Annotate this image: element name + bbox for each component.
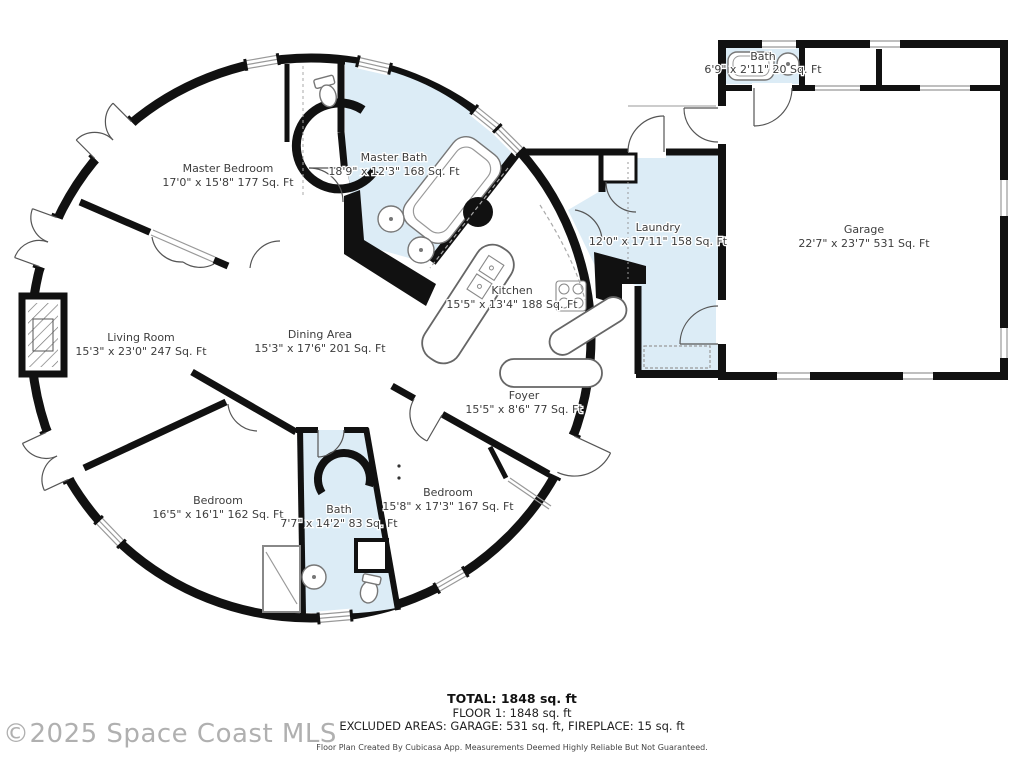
svg-text:16'5" x 16'1" 162 Sq. Ft: 16'5" x 16'1" 162 Sq. Ft bbox=[152, 508, 284, 521]
water-heater-icon bbox=[463, 197, 493, 227]
svg-text:Kitchen: Kitchen bbox=[491, 284, 532, 297]
summary-disclaimer: Floor Plan Created By Cubicasa App. Meas… bbox=[316, 743, 708, 752]
svg-text:15'8" x 17'3" 167 Sq. Ft: 15'8" x 17'3" 167 Sq. Ft bbox=[382, 500, 514, 513]
svg-text:Bedroom: Bedroom bbox=[193, 494, 243, 507]
svg-text:15'3" x 23'0" 247 Sq. Ft: 15'3" x 23'0" 247 Sq. Ft bbox=[75, 345, 207, 358]
floor-plan-canvas: Master Bedroom 17'0" x 15'8" 177 Sq. Ft … bbox=[0, 0, 1024, 768]
svg-text:Bath: Bath bbox=[326, 503, 352, 516]
svg-text:18'9" x 12'3" 168 Sq. Ft: 18'9" x 12'3" 168 Sq. Ft bbox=[328, 165, 460, 178]
svg-text:17'0" x 15'8" 177 Sq. Ft: 17'0" x 15'8" 177 Sq. Ft bbox=[162, 176, 294, 189]
svg-text:Foyer: Foyer bbox=[509, 389, 540, 402]
summary-excluded: EXCLUDED AREAS: GARAGE: 531 sq. ft, FIRE… bbox=[339, 719, 685, 733]
svg-text:Bath: Bath bbox=[750, 50, 776, 63]
summary-floor1: FLOOR 1: 1848 sq. ft bbox=[452, 706, 572, 720]
bedroom-left-closet bbox=[263, 546, 300, 612]
shower-stall-icon bbox=[356, 540, 387, 571]
floor-dot bbox=[397, 476, 400, 479]
svg-text:15'3" x 17'6" 201 Sq. Ft: 15'3" x 17'6" 201 Sq. Ft bbox=[254, 342, 386, 355]
summary-total: TOTAL: 1848 sq. ft bbox=[447, 691, 577, 706]
watermark: ©2025 Space Coast MLS bbox=[3, 719, 337, 749]
svg-text:Garage: Garage bbox=[844, 223, 885, 236]
svg-text:Dining Area: Dining Area bbox=[288, 328, 352, 341]
svg-text:Master Bath: Master Bath bbox=[361, 151, 428, 164]
svg-text:Laundry: Laundry bbox=[636, 221, 681, 234]
svg-text:6'9" x 2'11" 20 Sq. Ft: 6'9" x 2'11" 20 Sq. Ft bbox=[704, 63, 822, 76]
summary-block: TOTAL: 1848 sq. ft FLOOR 1: 1848 sq. ft … bbox=[316, 691, 708, 752]
svg-text:15'5" x 8'6" 77 Sq. Ft: 15'5" x 8'6" 77 Sq. Ft bbox=[465, 403, 583, 416]
floor-dot bbox=[397, 464, 400, 467]
svg-text:Bedroom: Bedroom bbox=[423, 486, 473, 499]
fireplace-icon bbox=[22, 296, 64, 374]
svg-text:12'0" x 17'11" 158 Sq. Ft: 12'0" x 17'11" 158 Sq. Ft bbox=[589, 235, 728, 248]
svg-text:Master Bedroom: Master Bedroom bbox=[183, 162, 274, 175]
svg-text:7'7" x 14'2" 83 Sq. Ft: 7'7" x 14'2" 83 Sq. Ft bbox=[280, 517, 398, 530]
garage-walls bbox=[722, 44, 1004, 376]
svg-text:Living Room: Living Room bbox=[107, 331, 175, 344]
svg-text:22'7" x 23'7" 531 Sq. Ft: 22'7" x 23'7" 531 Sq. Ft bbox=[798, 237, 930, 250]
svg-text:15'5" x 13'4" 188 Sq. Ft: 15'5" x 13'4" 188 Sq. Ft bbox=[446, 298, 578, 311]
